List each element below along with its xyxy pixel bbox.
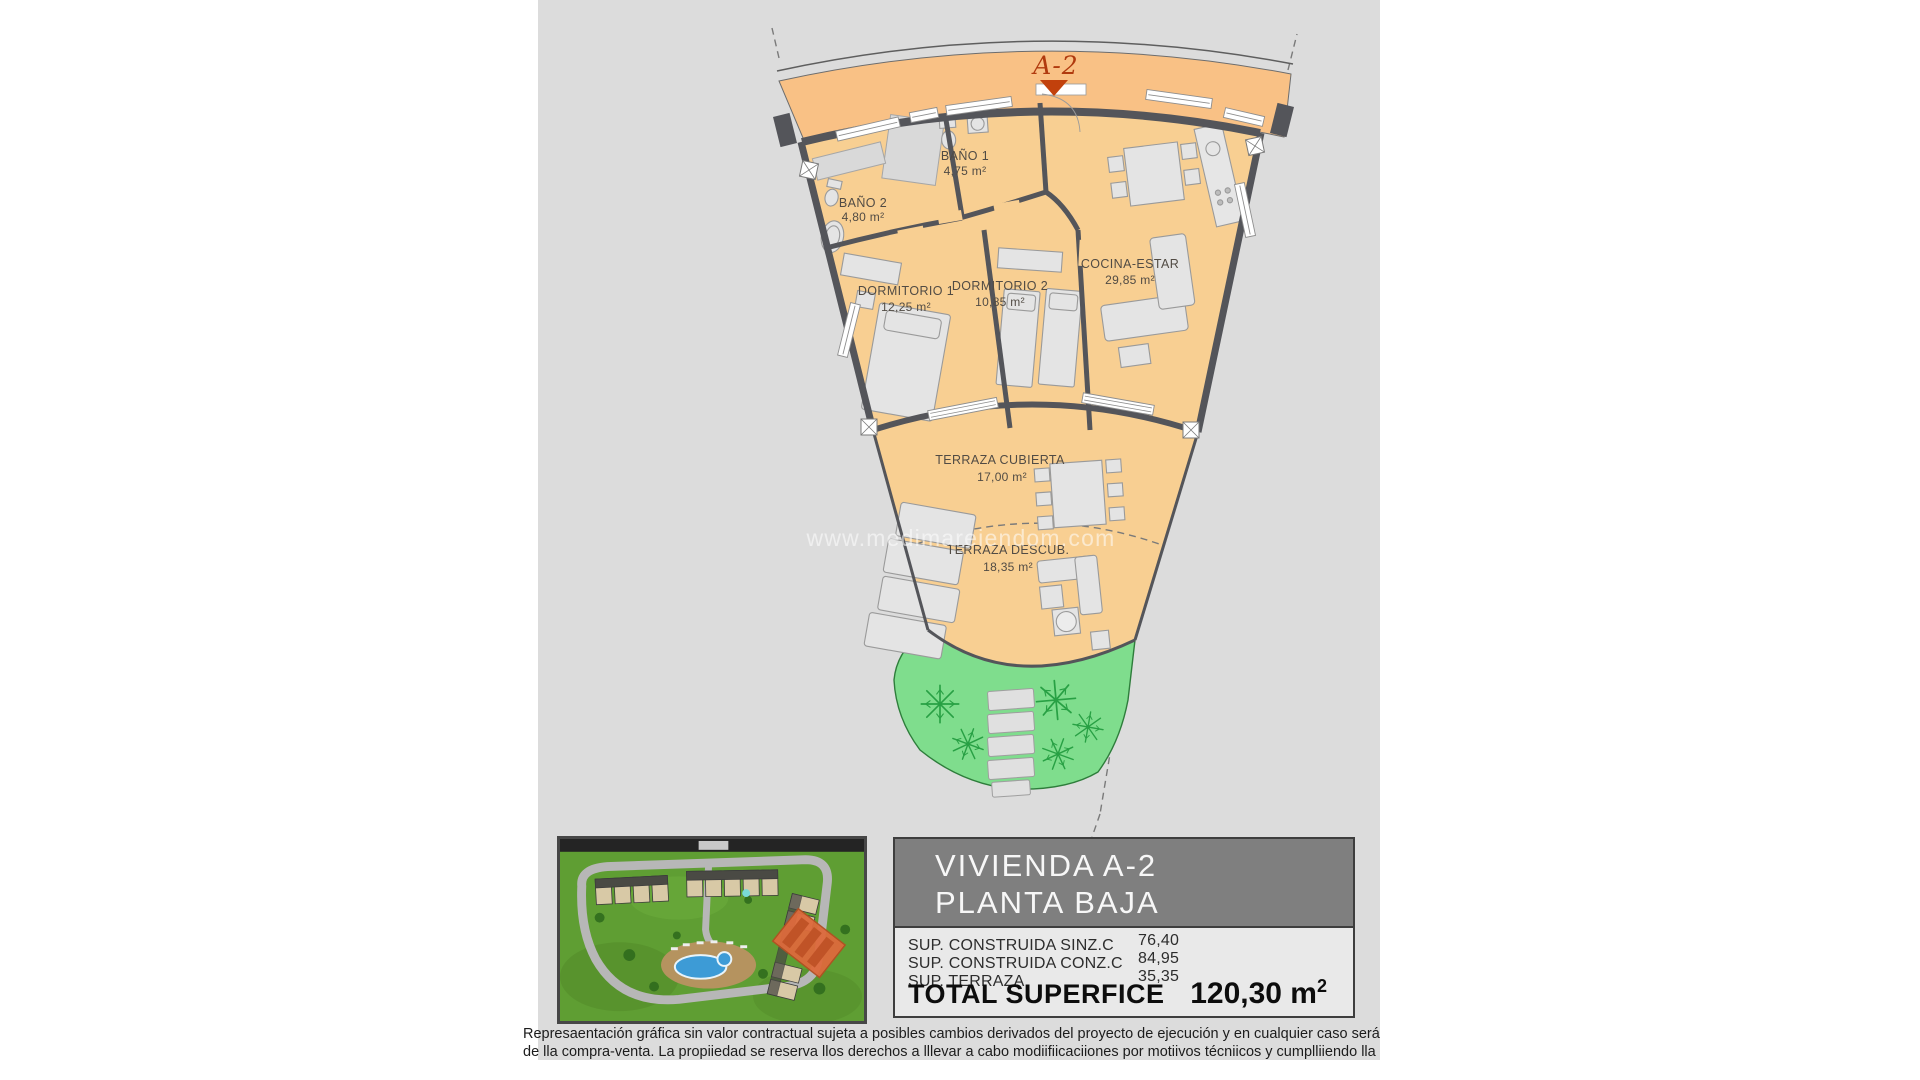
room-name: COCINA-ESTAR: [1081, 257, 1179, 271]
room-area: 18,35 m²: [983, 560, 1033, 574]
info-panel-body: SUP. CONSTRUIDA SINZ.C 76,40 SUP. CONSTR…: [895, 928, 1353, 1014]
siteplan-thumbnail: [557, 836, 867, 1024]
surface-value: 84,95: [1138, 950, 1179, 968]
surface-row: SUP. CONSTRUIDA SINZ.C 76,40: [908, 937, 1114, 955]
room-area: 4,75 m²: [944, 164, 987, 178]
panel-title-line1: VIVIENDA A-2: [935, 847, 1353, 884]
panel-title-line2: PLANTA BAJA: [935, 884, 1353, 921]
room-area: 17,00 m²: [977, 470, 1027, 484]
watermark-text: www.medimareiendom.com: [806, 525, 1116, 551]
room-name: DORMITORIO 1: [858, 284, 954, 298]
total-value: 120,30 m2: [1190, 976, 1327, 1011]
disclaimer-line1: Represaentación gráfica sin valor contra…: [523, 1026, 1380, 1044]
siteplan-graphic: [560, 839, 864, 1021]
room-area: 10,85 m²: [975, 295, 1025, 309]
total-value-exponent: 2: [1317, 976, 1327, 996]
disclaimer: Represaentación gráfica sin valor contra…: [523, 1026, 1380, 1061]
info-panel-header: VIVIENDA A-2 PLANTA BAJA: [895, 839, 1353, 928]
room-area: 4,80 m²: [842, 210, 885, 224]
surface-row: SUP. CONSTRUIDA CONZ.C 84,95: [908, 955, 1123, 973]
room-name: BAÑO 1: [941, 149, 989, 163]
page: A-2 BAÑO 1 4,75 m² BAÑO 2 4,80 m² DORMIT…: [0, 0, 1920, 1080]
unit-marker-label: A-2: [1031, 51, 1078, 80]
room-name: BAÑO 2: [839, 196, 887, 210]
room-area: 12,25 m²: [881, 300, 931, 314]
surface-label: SUP. CONSTRUIDA SINZ.C: [908, 937, 1114, 954]
surface-value: 76,40: [1138, 932, 1179, 950]
room-name: TERRAZA CUBIERTA: [935, 453, 1065, 467]
room-area: 29,85 m²: [1105, 273, 1155, 287]
disclaimer-line2: de lla compra-venta. La propiiedad se re…: [523, 1044, 1380, 1062]
surface-label: SUP. CONSTRUIDA CONZ.C: [908, 955, 1123, 972]
room-name: DORMITORIO 2: [952, 279, 1048, 293]
total-label: TOTAL SUPERFICE: [908, 979, 1165, 1010]
info-panel: VIVIENDA A-2 PLANTA BAJA SUP. CONSTRUIDA…: [893, 837, 1355, 1018]
total-row: TOTAL SUPERFICE 120,30 m2: [908, 976, 1341, 1011]
